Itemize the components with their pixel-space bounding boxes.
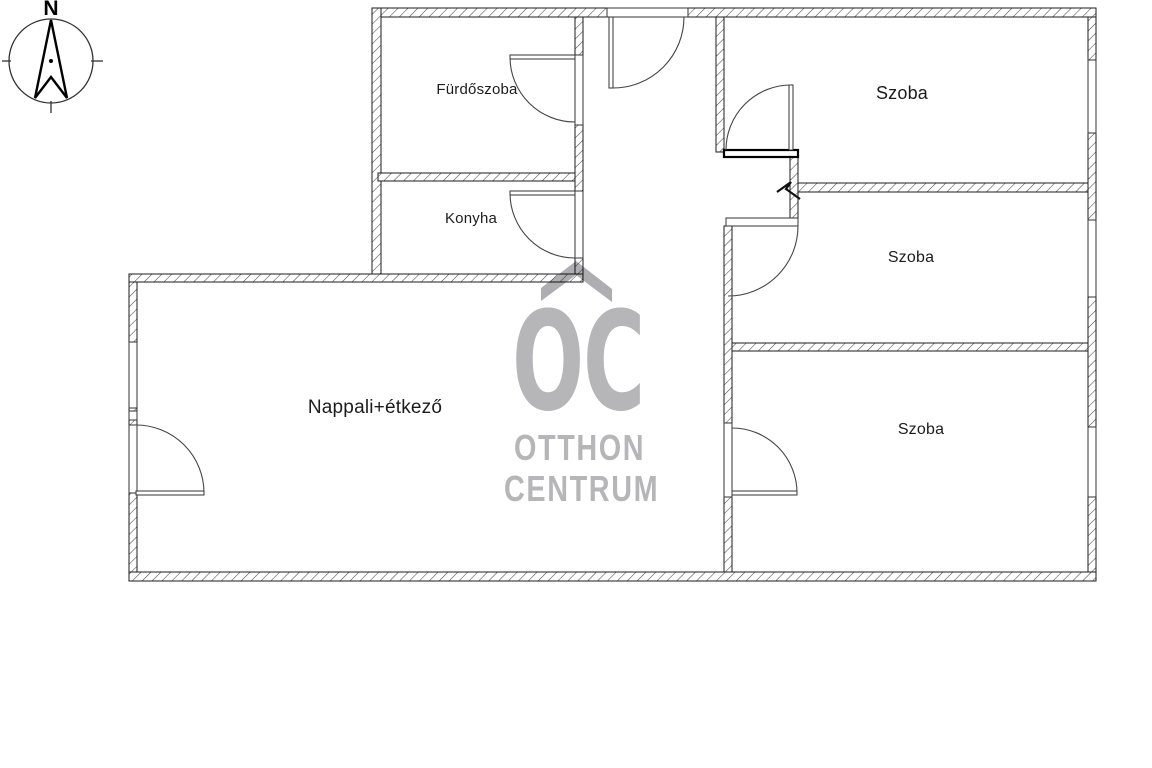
compass-center-dot [49, 59, 53, 63]
wall-segment [1088, 133, 1096, 220]
room-label-bedroom-middle: Szoba [888, 249, 934, 267]
door-swing-arc [136, 425, 204, 493]
door-swing-arc [510, 57, 575, 122]
wall-segment [129, 274, 583, 282]
bedroom-door-opening [724, 423, 732, 497]
door-swing-arc [726, 85, 791, 150]
wall-segment [1088, 17, 1096, 60]
door-leaf [609, 17, 613, 88]
bathroom-door-opening [575, 55, 583, 125]
wall-segment [129, 282, 137, 342]
wall-jamb [129, 411, 137, 420]
room-label-bathroom: Fürdőszoba [436, 81, 517, 98]
compass-rose: N [2, 0, 114, 118]
floor-plan-page: OC OTTHON CENTRUM N Fürdőszoba Konyha Na… [0, 0, 1152, 768]
door-swing-arc [728, 226, 798, 296]
wall-segment [372, 8, 381, 282]
floor-plan-drawing [0, 0, 1152, 768]
wall-segment [724, 497, 732, 572]
door-leaf [510, 55, 575, 59]
room-label-living: Nappali+étkező [308, 397, 442, 419]
entrance-door-opening [607, 8, 688, 17]
wall-segment [724, 343, 1088, 351]
door-leaf [732, 491, 797, 495]
wall-segment [129, 572, 1096, 581]
room-label-bedroom-bottom: Szoba [898, 421, 944, 439]
wall-segment [688, 8, 1096, 17]
wall-segment [378, 173, 577, 181]
door-leaf [136, 491, 204, 495]
window [1088, 427, 1096, 497]
wall-segment [575, 17, 583, 55]
wall-segment [798, 183, 1088, 192]
window [1088, 220, 1096, 297]
kitchen-door-opening [575, 191, 583, 258]
window [129, 342, 137, 408]
door-leaf [789, 85, 793, 150]
walls-group [129, 8, 1096, 581]
living-room-door-opening [129, 425, 137, 493]
wall-segment [716, 17, 724, 152]
wall-segment [1088, 297, 1096, 427]
wall-segment [1088, 497, 1096, 572]
door-swing-arc [510, 193, 575, 258]
window [1088, 60, 1096, 133]
wall-segment [790, 157, 798, 218]
wall-segment [129, 493, 137, 573]
door-threshold [724, 150, 798, 157]
wall-segment [372, 8, 607, 17]
door-swing-arc [613, 17, 684, 88]
compass-north-label: N [43, 0, 58, 21]
door-leaf [510, 191, 575, 195]
door-swing-arc [732, 428, 797, 493]
wall-segment [724, 226, 732, 423]
wall-segment [575, 125, 583, 191]
room-label-bedroom-top: Szoba [876, 83, 928, 104]
room-label-kitchen: Konyha [445, 210, 497, 227]
door-threshold [726, 218, 798, 226]
